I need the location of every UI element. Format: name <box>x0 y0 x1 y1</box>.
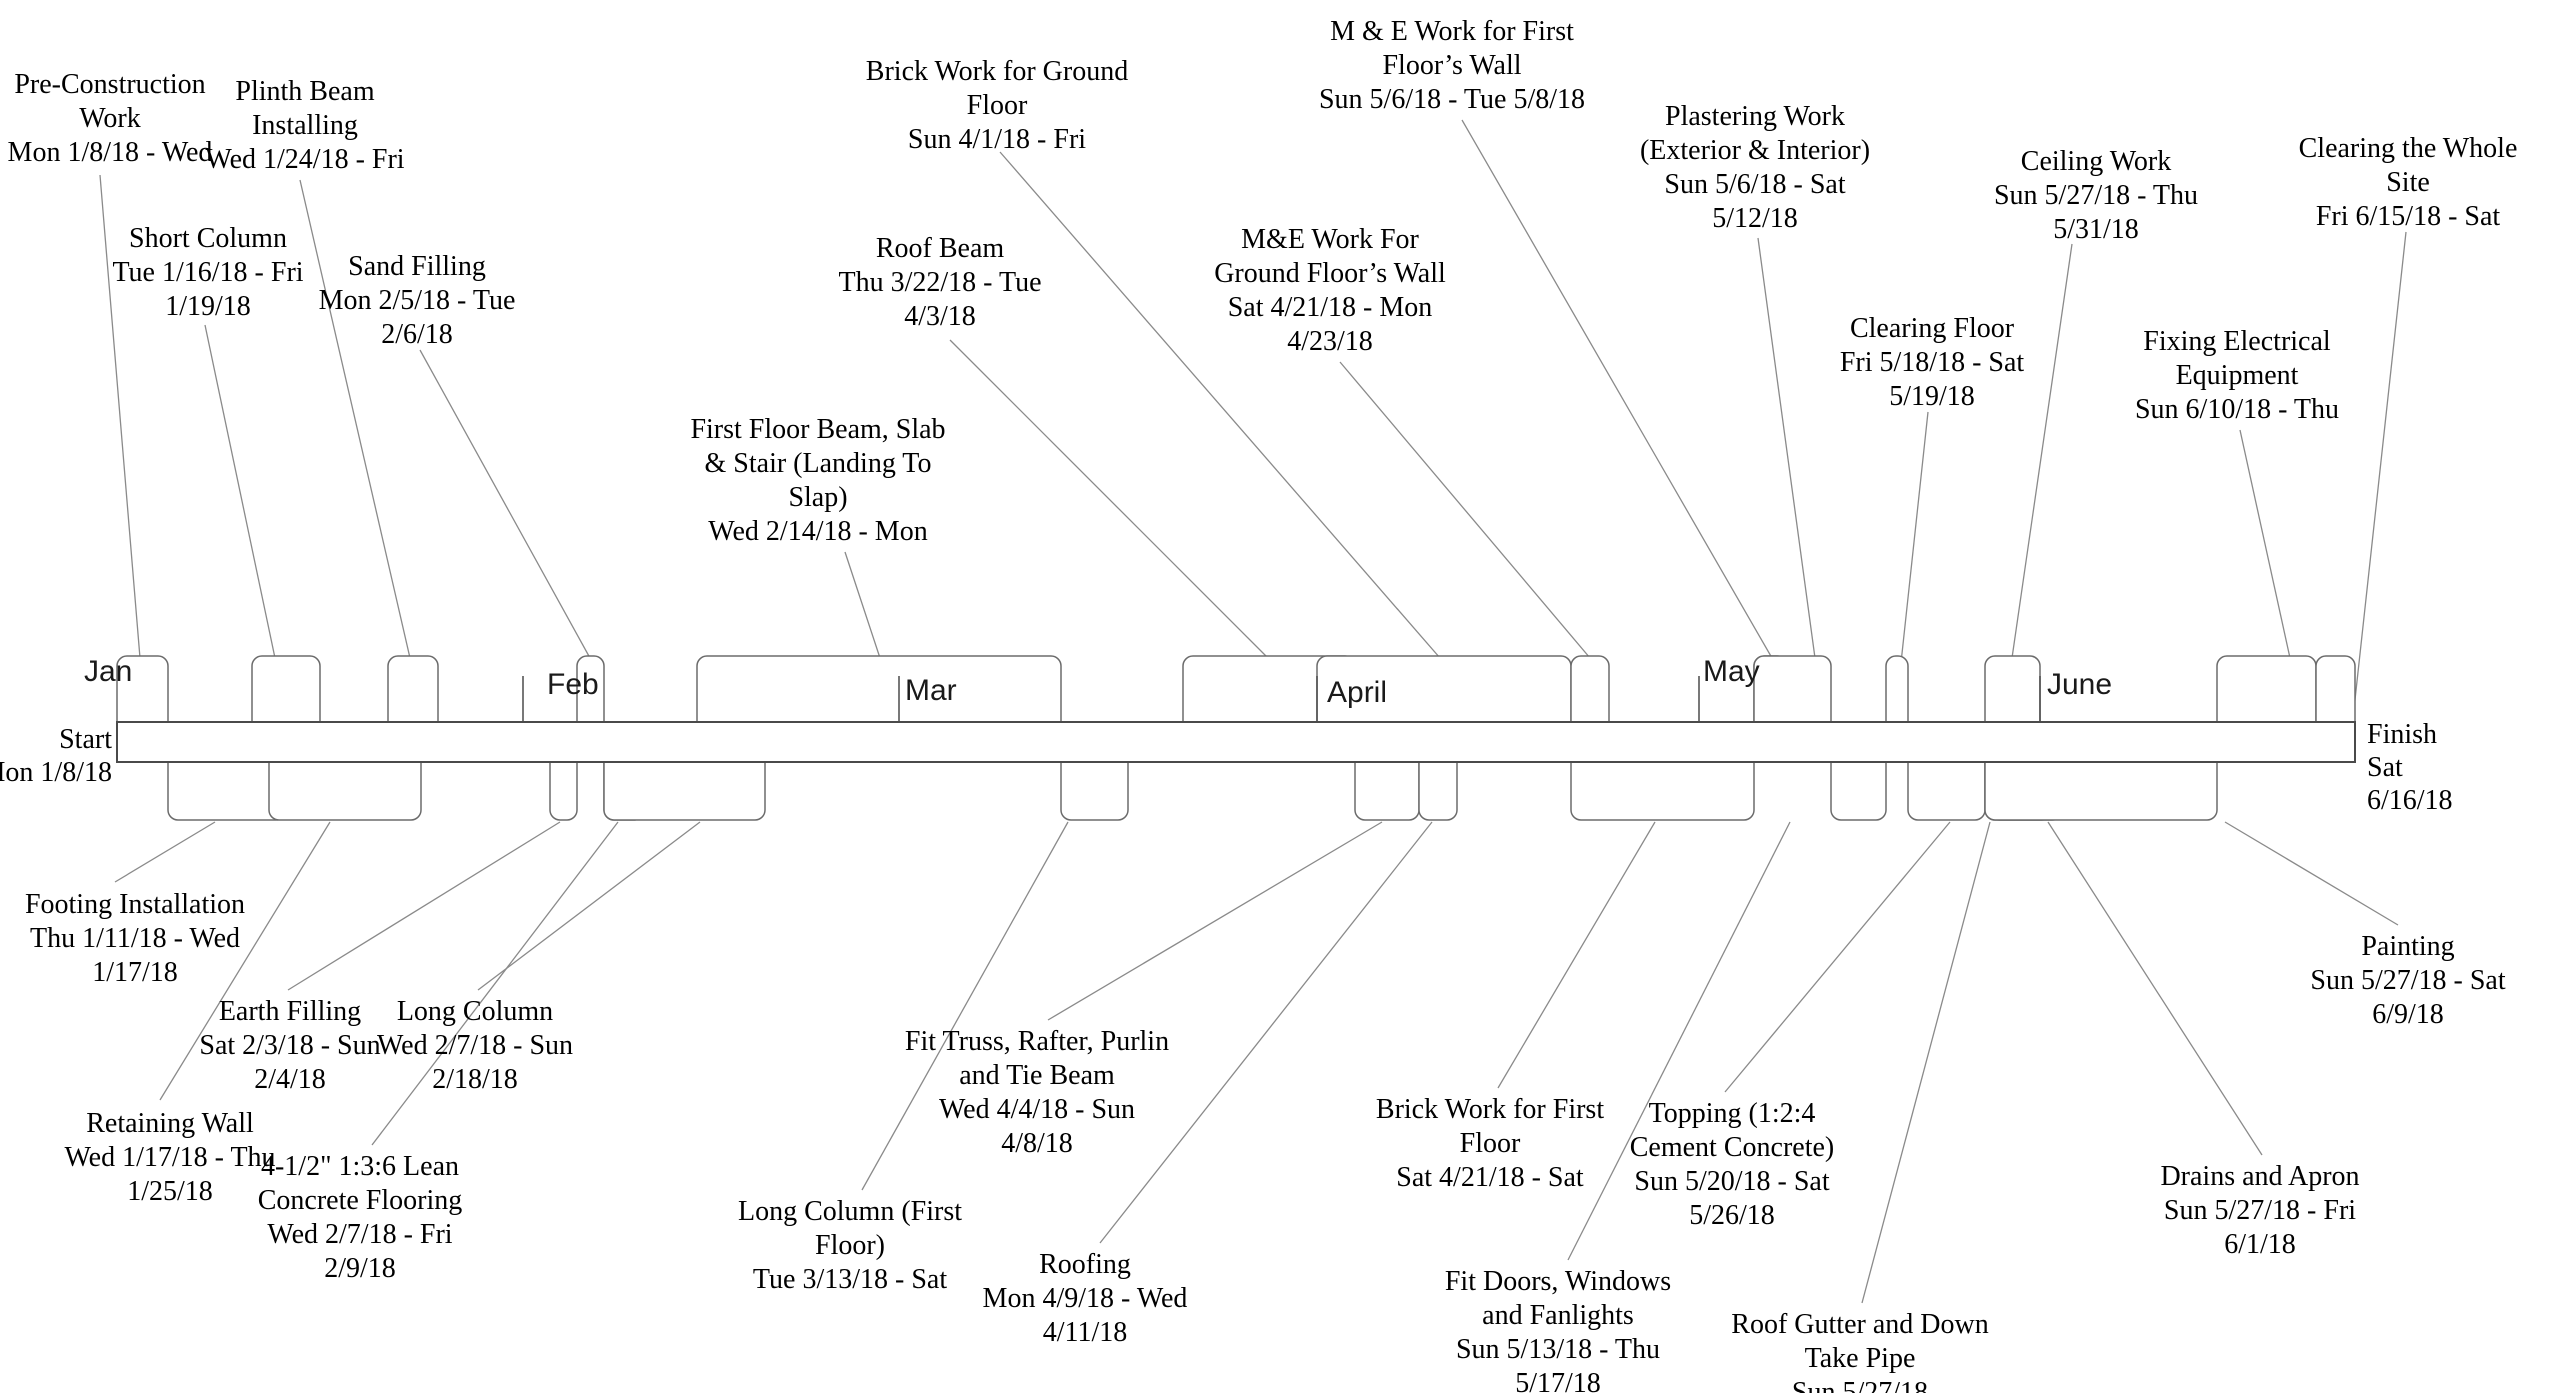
month-label-feb: Feb <box>547 668 599 702</box>
task-label-line: Roofing <box>895 1248 1275 1282</box>
task-label-line: Sat 4/21/18 - Mon <box>1140 291 1520 325</box>
task-label-line: Equipment <box>2047 359 2427 393</box>
task-label-line: Wed 2/7/18 - Fri <box>170 1218 550 1252</box>
task-label-line: 6/1/18 <box>2070 1228 2450 1262</box>
timeline-bar <box>117 722 2355 762</box>
leader-line <box>115 822 215 882</box>
task-label: Plastering Work(Exterior & Interior)Sun … <box>1565 100 1945 236</box>
start-label: Start Mon 1/8/18 <box>0 723 112 789</box>
leader-line <box>478 822 700 990</box>
task-label-line: Plinth Beam <box>115 75 495 109</box>
task-label: Topping (1:2:4Cement Concrete)Sun 5/20/1… <box>1542 1097 1922 1233</box>
task-label-line: 4/8/18 <box>847 1127 1227 1161</box>
leader-line <box>1498 822 1655 1088</box>
month-label-jan: Jan <box>84 655 132 689</box>
task-label-line: 4/3/18 <box>750 300 1130 334</box>
task-label: First Floor Beam, Slab& Stair (Landing T… <box>628 413 1008 549</box>
finish-label-line: Finish <box>2367 718 2453 751</box>
finish-label-line: Sat <box>2367 751 2453 784</box>
task-label-line: Fit Doors, Windows <box>1368 1265 1748 1299</box>
leader-line <box>288 822 560 990</box>
task-label-line: Wed 2/14/18 - Mon <box>628 515 1008 549</box>
task-label-line: 1/17/18 <box>0 956 325 990</box>
task-label-line: Floor <box>807 89 1187 123</box>
task-label: Plinth BeamInstallingWed 1/24/18 - Fri <box>115 75 495 177</box>
task-label: Drains and ApronSun 5/27/18 - Fri6/1/18 <box>2070 1160 2450 1262</box>
task-label-line: Site <box>2218 166 2560 200</box>
task-label-line: Mon 2/5/18 - Tue <box>227 284 607 318</box>
task-label-line: 2/9/18 <box>170 1252 550 1286</box>
task-label-line: Wed 4/4/18 - Sun <box>847 1093 1227 1127</box>
task-label-line: Ground Floor’s Wall <box>1140 257 1520 291</box>
finish-label: Finish Sat 6/16/18 <box>2367 718 2453 817</box>
task-label-line: 4/11/18 <box>895 1316 1275 1350</box>
finish-label-line: 6/16/18 <box>2367 784 2453 817</box>
month-label-june: June <box>2047 668 2112 702</box>
start-label-line: Start <box>0 723 112 756</box>
task-label-line: Slap) <box>628 481 1008 515</box>
month-label-april: April <box>1327 676 1385 710</box>
task-label: Long ColumnWed 2/7/18 - Sun2/18/18 <box>285 995 665 1097</box>
task-label: Fixing ElectricalEquipmentSun 6/10/18 - … <box>2047 325 2427 427</box>
task-label-line: and Tie Beam <box>847 1059 1227 1093</box>
task-label-line: Sun 6/10/18 - Thu <box>2047 393 2427 427</box>
leader-line <box>1340 362 1590 658</box>
task-label-line: First Floor Beam, Slab <box>628 413 1008 447</box>
task-label-line: Plastering Work <box>1565 100 1945 134</box>
leader-line <box>205 325 275 658</box>
task-label-line: Clearing the Whole <box>2218 132 2560 166</box>
task-label: PaintingSun 5/27/18 - Sat6/9/18 <box>2218 930 2560 1032</box>
task-label-line: Long Column <box>285 995 665 1029</box>
task-label-line: & Stair (Landing To <box>628 447 1008 481</box>
task-label: Roof BeamThu 3/22/18 - Tue4/3/18 <box>750 232 1130 334</box>
task-label-line: Cement Concrete) <box>1542 1131 1922 1165</box>
task-label-line: Floor’s Wall <box>1262 49 1642 83</box>
task-label-line: Wed 1/24/18 - Fri <box>115 143 495 177</box>
task-label-line: Roof Beam <box>750 232 1130 266</box>
start-label-line: Mon 1/8/18 <box>0 756 112 789</box>
task-label: Sand FillingMon 2/5/18 - Tue2/6/18 <box>227 250 607 352</box>
task-label-line: 2/18/18 <box>285 1063 665 1097</box>
leader-line <box>1048 822 1382 1020</box>
task-label-line: Fit Truss, Rafter, Purlin <box>847 1025 1227 1059</box>
task-label: M&E Work ForGround Floor’s WallSat 4/21/… <box>1140 223 1520 359</box>
task-label-line: Sun 5/27/18 <box>1670 1376 2050 1393</box>
leader-line <box>2225 822 2398 925</box>
task-label-line: Take Pipe <box>1670 1342 2050 1376</box>
month-label-mar: Mar <box>905 674 957 708</box>
task-label-line: Retaining Wall <box>0 1107 360 1141</box>
task-label: Brick Work for GroundFloorSun 4/1/18 - F… <box>807 55 1187 157</box>
task-label: Footing InstallationThu 1/11/18 - Wed1/1… <box>0 888 325 990</box>
task-label-line: Long Column (First <box>660 1195 1040 1229</box>
task-label-line: Painting <box>2218 930 2560 964</box>
task-label-line: 2/6/18 <box>227 318 607 352</box>
leader-line <box>2240 430 2290 658</box>
task-label-line: 4/23/18 <box>1140 325 1520 359</box>
task-label-line: Installing <box>115 109 495 143</box>
leader-line <box>420 350 590 658</box>
task-label-line: Sun 5/6/18 - Sat <box>1565 168 1945 202</box>
task-label-line: 5/26/18 <box>1542 1199 1922 1233</box>
task-label-line: Fri 6/15/18 - Sat <box>2218 200 2560 234</box>
task-label-line: Footing Installation <box>0 888 325 922</box>
task-label-line: Fixing Electrical <box>2047 325 2427 359</box>
month-label-may: May <box>1703 655 1760 689</box>
task-label-line: 6/9/18 <box>2218 998 2560 1032</box>
task-label-line: M & E Work for First <box>1262 15 1642 49</box>
task-label-line: Thu 1/11/18 - Wed <box>0 922 325 956</box>
task-label-line: Roof Gutter and Down <box>1670 1308 2050 1342</box>
leader-line <box>1725 822 1950 1092</box>
task-label: RoofingMon 4/9/18 - Wed4/11/18 <box>895 1248 1275 1350</box>
task-label-line: Mon 4/9/18 - Wed <box>895 1282 1275 1316</box>
leader-line <box>2012 244 2072 658</box>
task-label-line: Topping (1:2:4 <box>1542 1097 1922 1131</box>
task-label-line: Concrete Flooring <box>170 1184 550 1218</box>
task-label-line: Sun 5/20/18 - Sat <box>1542 1165 1922 1199</box>
leader-line <box>2353 232 2406 718</box>
leader-line <box>1758 238 1815 658</box>
task-label-line: (Exterior & Interior) <box>1565 134 1945 168</box>
task-label-line: Sun 5/27/18 - Sat <box>2218 964 2560 998</box>
task-label-line: Wed 2/7/18 - Sun <box>285 1029 665 1063</box>
task-label-line: Drains and Apron <box>2070 1160 2450 1194</box>
task-label-line: Sun 5/27/18 - Fri <box>2070 1194 2450 1228</box>
timeline-diagram: Start Mon 1/8/18 Finish Sat 6/16/18 JanF… <box>0 0 2560 1393</box>
task-label-line: Sun 4/1/18 - Fri <box>807 123 1187 157</box>
task-label-line: Sand Filling <box>227 250 607 284</box>
task-label-line: M&E Work For <box>1140 223 1520 257</box>
task-label: Clearing the WholeSiteFri 6/15/18 - Sat <box>2218 132 2560 234</box>
task-label-line: 5/12/18 <box>1565 202 1945 236</box>
task-label-line: Brick Work for Ground <box>807 55 1187 89</box>
task-label-line: Thu 3/22/18 - Tue <box>750 266 1130 300</box>
task-label: 4-1/2" 1:3:6 LeanConcrete FlooringWed 2/… <box>170 1150 550 1286</box>
task-label-line: 4-1/2" 1:3:6 Lean <box>170 1150 550 1184</box>
task-label: Fit Truss, Rafter, Purlinand Tie BeamWed… <box>847 1025 1227 1161</box>
task-label: Roof Gutter and DownTake PipeSun 5/27/18 <box>1670 1308 2050 1393</box>
leader-line <box>845 552 880 658</box>
